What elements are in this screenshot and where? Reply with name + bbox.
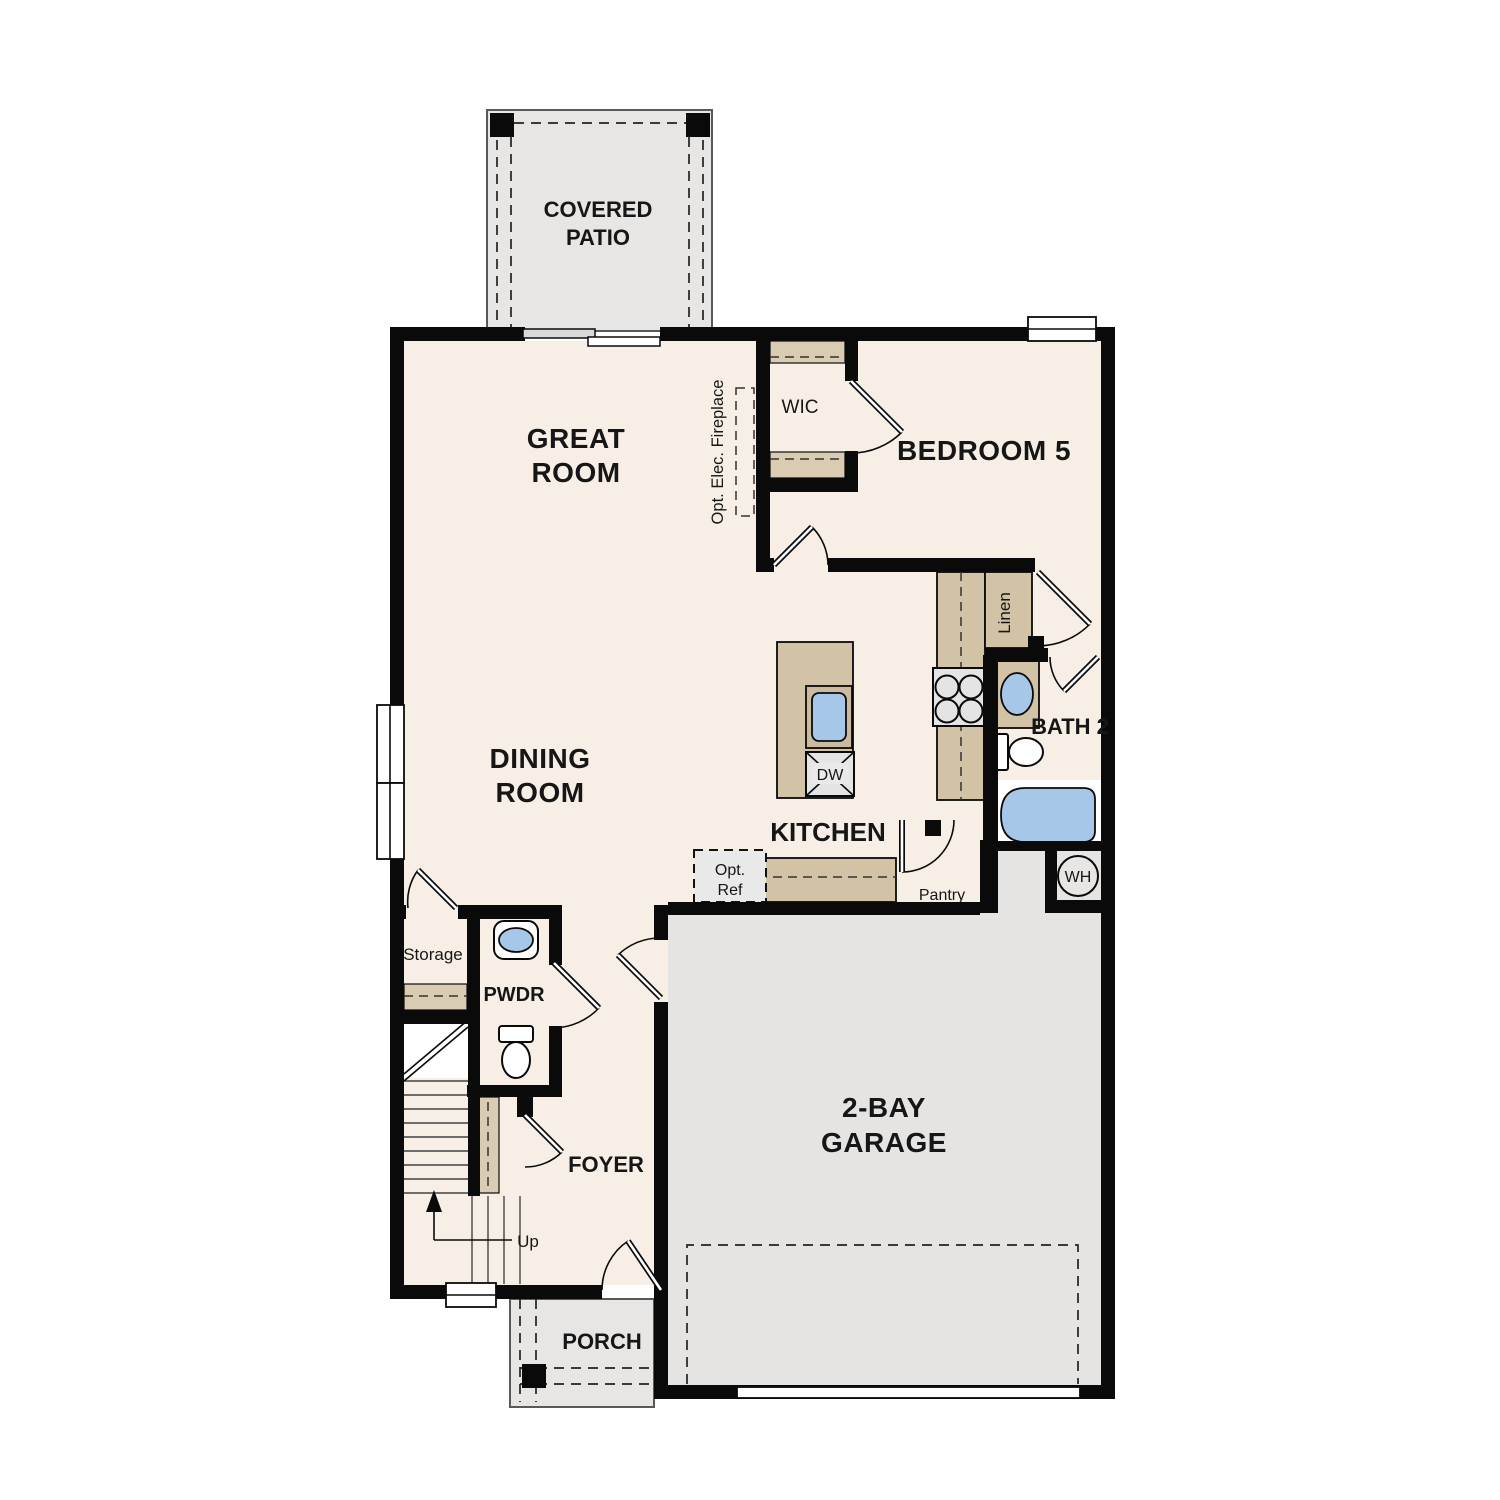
label-pantry: Pantry: [919, 887, 965, 904]
porch-post: [522, 1364, 546, 1388]
room-label-great-room-1: GREAT: [527, 423, 625, 454]
patio-post-left: [490, 113, 514, 137]
wic-shelf-bottom: [770, 452, 845, 478]
bath2-sink: [1001, 673, 1033, 715]
room-label-covered-patio-2: PATIO: [566, 225, 630, 250]
label-linen: Linen: [995, 592, 1014, 634]
foyer-window: [446, 1283, 496, 1307]
stair-break-area: [404, 1024, 468, 1078]
kitchen-counter-lower: [760, 858, 896, 902]
room-label-dining-2: ROOM: [495, 777, 584, 808]
label-wh: WH: [1065, 869, 1092, 886]
floor-plan: COVERED PATIO GREAT ROOM WIC BEDROOM 5 O…: [0, 0, 1500, 1500]
pwdr-toilet: [499, 1026, 533, 1078]
room-label-covered-patio-1: COVERED: [544, 197, 653, 222]
label-dw: DW: [817, 767, 845, 784]
label-up: Up: [517, 1232, 539, 1251]
dining-window-lower: [377, 783, 404, 859]
island-sink: [812, 693, 846, 741]
wic-shelf-top: [770, 341, 845, 363]
room-label-pwdr: PWDR: [483, 984, 545, 1006]
room-label-bath2: BATH 2: [1031, 714, 1109, 739]
room-label-wic: WIC: [782, 397, 819, 418]
pwdr-sink: [494, 921, 538, 959]
room-label-kitchen: KITCHEN: [770, 817, 886, 847]
stove: [933, 668, 985, 726]
bedroom5-window: [1028, 317, 1096, 341]
dining-window-upper: [377, 705, 404, 783]
label-opt-elec-fireplace: Opt. Elec. Fireplace: [709, 380, 727, 525]
patio-post-right: [686, 113, 710, 137]
storage-shelf: [404, 984, 467, 1010]
garage-door: [737, 1387, 1080, 1398]
room-label-dining-1: DINING: [490, 743, 591, 774]
label-opt-ref-1: Opt.: [715, 862, 745, 879]
floor-plan-page: COVERED PATIO GREAT ROOM WIC BEDROOM 5 O…: [0, 0, 1500, 1500]
bathtub: [1001, 788, 1095, 842]
room-label-great-room-2: ROOM: [531, 457, 620, 488]
room-label-bedroom5: BEDROOM 5: [897, 435, 1071, 466]
room-label-garage-1: 2-BAY: [842, 1092, 926, 1123]
label-opt-ref-2: Ref: [718, 882, 743, 899]
room-label-foyer: FOYER: [568, 1152, 644, 1177]
bath2-toilet: [995, 734, 1043, 770]
room-label-storage: Storage: [403, 945, 463, 964]
room-label-garage-2: GARAGE: [821, 1127, 947, 1158]
room-label-porch: PORCH: [562, 1329, 641, 1354]
garage-niche-left: [998, 851, 1045, 913]
